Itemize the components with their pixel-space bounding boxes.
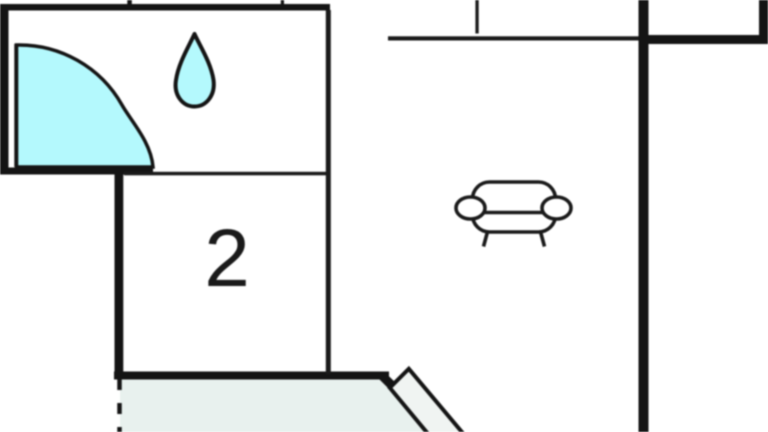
svg-text:2: 2 — [204, 213, 250, 304]
